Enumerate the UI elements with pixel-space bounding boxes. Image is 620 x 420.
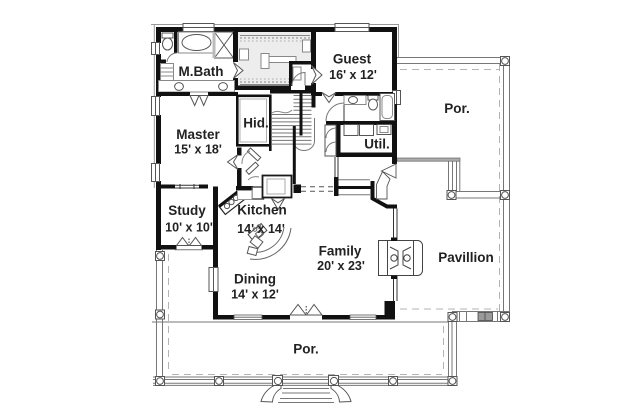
svg-text:Study: Study: [168, 203, 206, 218]
svg-text:Guest: Guest: [333, 52, 372, 67]
svg-text:Kitchen: Kitchen: [237, 203, 287, 218]
svg-text:Por.: Por.: [293, 342, 319, 357]
svg-text:Hid.: Hid.: [243, 116, 269, 131]
svg-text:14' x 14': 14' x 14': [237, 222, 285, 236]
svg-text:20' x 23': 20' x 23': [317, 259, 365, 273]
svg-text:Master: Master: [176, 127, 220, 142]
svg-text:Dining: Dining: [234, 272, 276, 287]
svg-text:Util.: Util.: [364, 137, 390, 152]
svg-text:Por.: Por.: [444, 101, 470, 116]
svg-text:Pavillion: Pavillion: [438, 250, 494, 265]
svg-text:15' x 18': 15' x 18': [174, 143, 222, 157]
svg-text:16' x 12': 16' x 12': [329, 68, 377, 82]
svg-text:Family: Family: [319, 244, 362, 259]
svg-text:M.Bath: M.Bath: [179, 64, 224, 79]
svg-text:10' x 10': 10' x 10': [165, 221, 213, 235]
svg-text:14' x 12': 14' x 12': [231, 288, 279, 302]
